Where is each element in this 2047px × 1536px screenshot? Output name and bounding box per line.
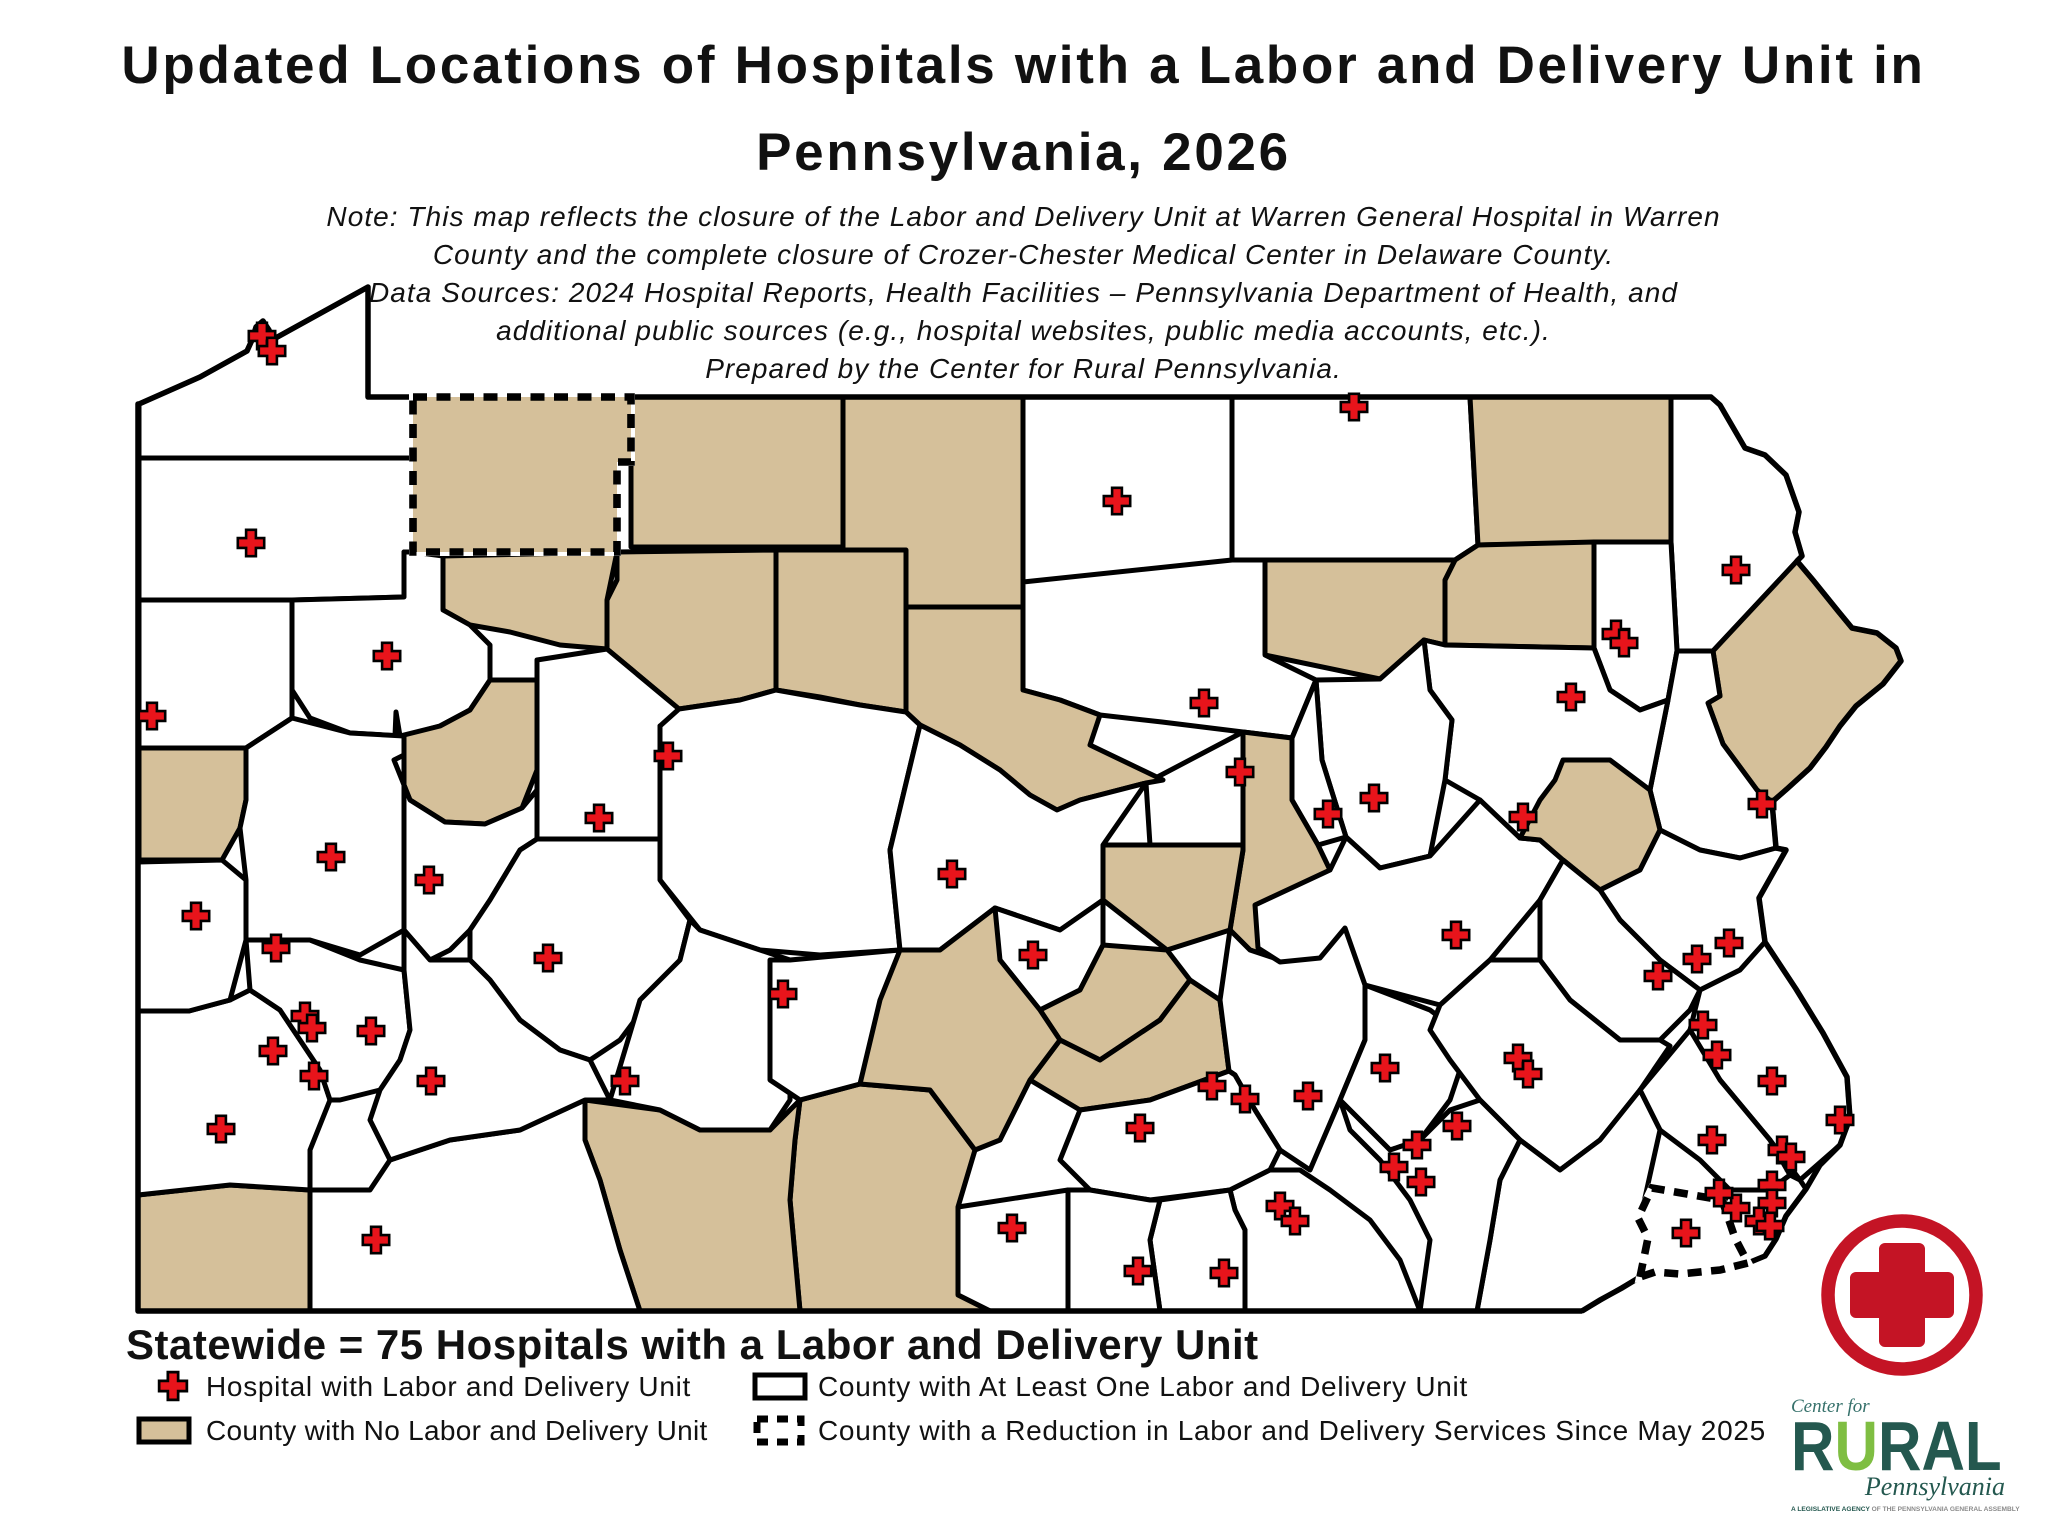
svg-text:County with No Labor and Deliv: County with No Labor and Delivery Unit — [206, 1415, 708, 1446]
svg-text:Hospital with Labor and Delive: Hospital with Labor and Delivery Unit — [206, 1371, 691, 1402]
svg-text:County with a Reduction in Lab: County with a Reduction in Labor and Del… — [818, 1415, 1766, 1446]
svg-text:County with At Least One Labor: County with At Least One Labor and Deliv… — [818, 1371, 1468, 1402]
